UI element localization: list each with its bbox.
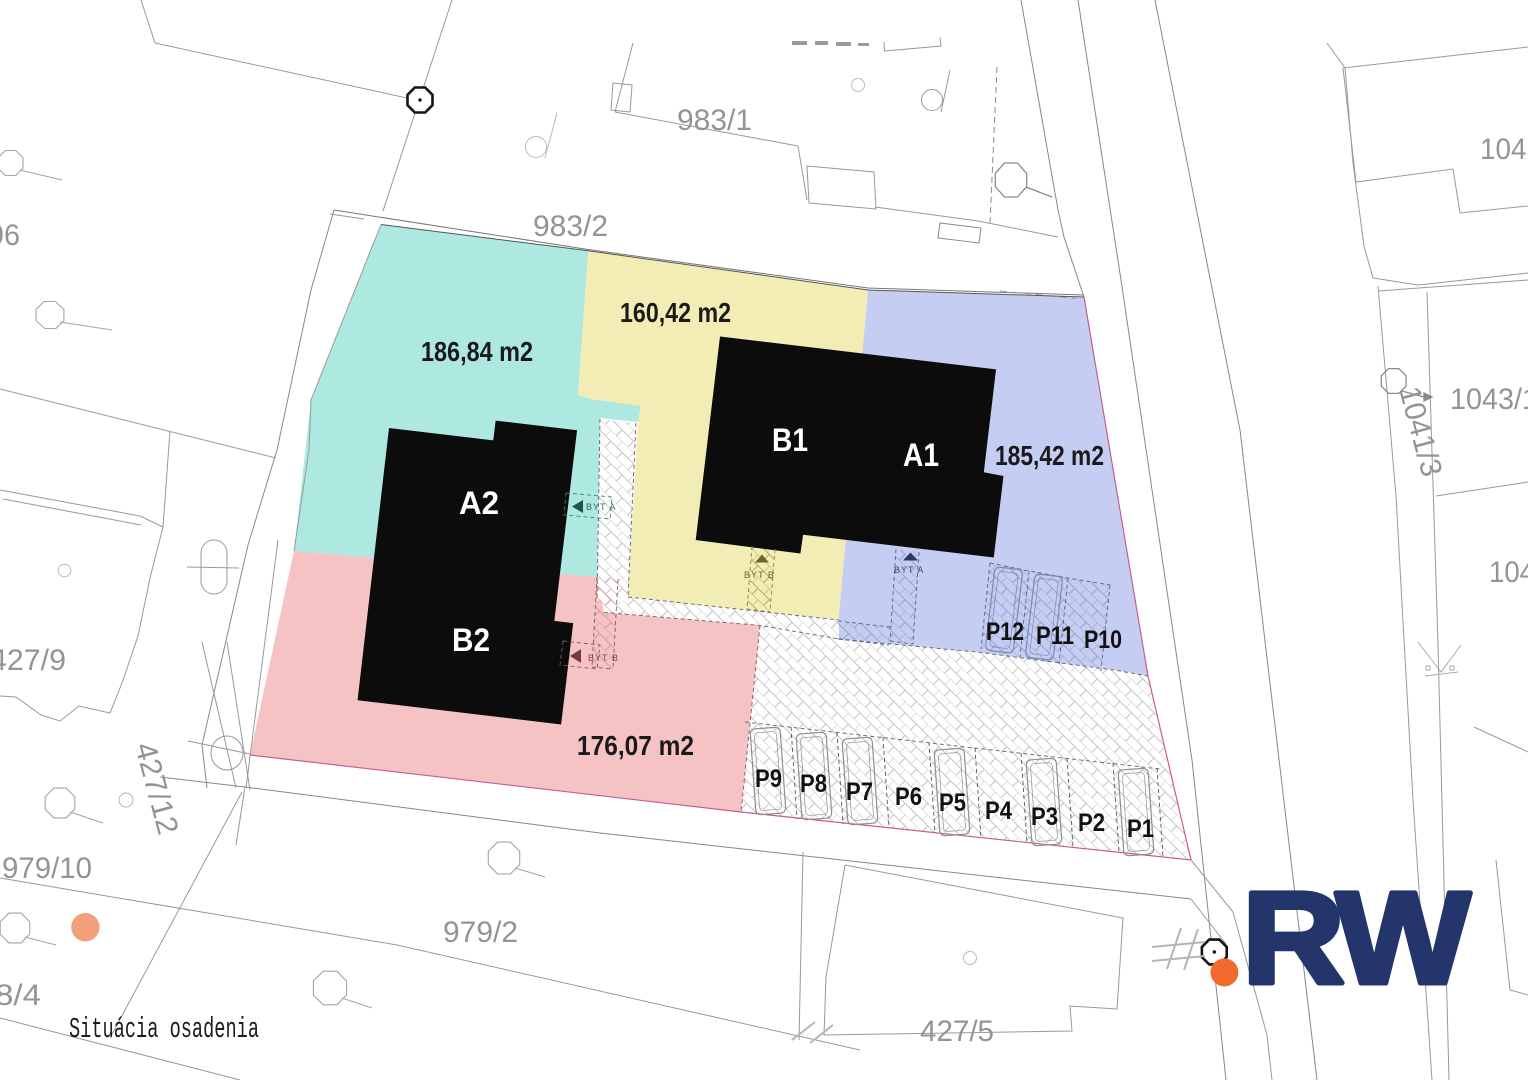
svg-text:RW: RW xyxy=(1242,865,1471,1011)
svg-text:186,84 m2: 186,84 m2 xyxy=(421,336,533,367)
svg-text:BYT B: BYT B xyxy=(744,570,775,580)
svg-text:P10: P10 xyxy=(1084,626,1122,654)
svg-text:P12: P12 xyxy=(986,618,1024,646)
svg-text:P7: P7 xyxy=(846,778,873,806)
svg-text:160,42 m2: 160,42 m2 xyxy=(620,297,731,328)
svg-text:BYT A: BYT A xyxy=(894,565,924,575)
svg-text:P11: P11 xyxy=(1036,622,1074,650)
svg-text:8/4: 8/4 xyxy=(0,979,41,1012)
svg-text:427/5: 427/5 xyxy=(920,1015,994,1048)
svg-text:P6: P6 xyxy=(895,783,922,811)
svg-text:1045: 1045 xyxy=(1480,133,1528,166)
svg-text:P3: P3 xyxy=(1031,803,1058,831)
svg-text:P2: P2 xyxy=(1078,809,1105,837)
svg-text:B1: B1 xyxy=(772,422,808,458)
svg-text:A2: A2 xyxy=(459,485,499,521)
svg-text:1043/1: 1043/1 xyxy=(1450,383,1528,416)
svg-text:Situácia osadenia: Situácia osadenia xyxy=(69,1013,259,1046)
svg-text:185,42 m2: 185,42 m2 xyxy=(995,440,1104,471)
svg-text:983/2: 983/2 xyxy=(533,210,608,243)
svg-text:96: 96 xyxy=(0,219,20,252)
svg-text:P5: P5 xyxy=(939,789,966,817)
svg-text:P1: P1 xyxy=(1127,815,1154,843)
svg-text:979/2: 979/2 xyxy=(443,916,518,949)
svg-text:BYT A: BYT A xyxy=(586,502,616,512)
svg-text:427/9: 427/9 xyxy=(0,644,66,677)
svg-text:104: 104 xyxy=(1489,556,1528,589)
svg-text:983/1: 983/1 xyxy=(677,104,752,137)
svg-text:176,07 m2: 176,07 m2 xyxy=(577,730,694,761)
svg-text:A1: A1 xyxy=(903,437,939,473)
svg-text:P9: P9 xyxy=(755,765,782,793)
svg-text:P4: P4 xyxy=(985,797,1012,825)
svg-text:BYT B: BYT B xyxy=(588,653,619,663)
svg-text:B2: B2 xyxy=(452,622,490,658)
svg-text:P8: P8 xyxy=(800,770,827,798)
svg-text:979/10: 979/10 xyxy=(2,852,92,885)
